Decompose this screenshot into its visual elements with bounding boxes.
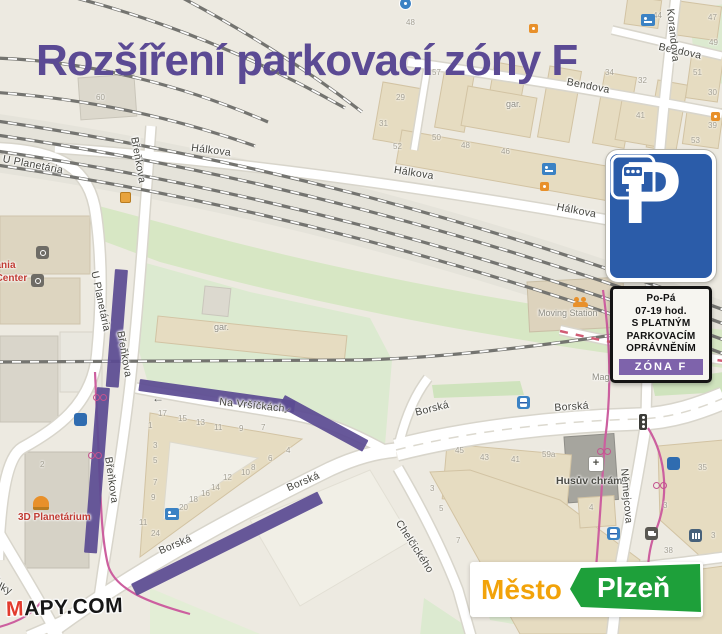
house-number: 4 xyxy=(589,503,593,512)
house-number: 11 xyxy=(214,423,222,432)
street-label: Břeňkova xyxy=(102,456,120,504)
house-number: 6 xyxy=(268,454,272,463)
house-number: 52 xyxy=(393,142,402,151)
shop-icon xyxy=(540,182,549,191)
house-number: 50 xyxy=(432,133,441,142)
parking-meter-icon xyxy=(610,154,656,200)
bike-icon xyxy=(653,480,665,488)
parking-sign-blue-panel: P xyxy=(606,150,716,282)
parking-icon xyxy=(667,457,680,470)
street-label: Borská xyxy=(285,470,321,495)
crossing-icon xyxy=(120,192,131,203)
house-number: 59a xyxy=(542,450,555,459)
pin-icon xyxy=(399,0,412,10)
street-label: Borská xyxy=(554,400,589,414)
house-number: 32 xyxy=(638,76,647,85)
house-number: 31 xyxy=(379,119,388,128)
house-number: 7 xyxy=(153,478,157,487)
house-number: 51 xyxy=(693,68,702,77)
shop-icon xyxy=(529,24,538,33)
house-number: 9 xyxy=(151,493,155,502)
house-number: 39 xyxy=(708,121,717,130)
house-number: 2 xyxy=(40,460,44,469)
tram-icon xyxy=(517,396,530,409)
house-number: 8 xyxy=(251,463,255,472)
plate-line: OPRÁVNĚNÍM xyxy=(613,343,709,356)
street-label: Němejcova xyxy=(618,468,635,524)
house-number: 12 xyxy=(223,473,232,482)
mapy-logo-rest: APY.COM xyxy=(24,594,124,620)
map-canvas: 2931525048464257343248444749513041395360… xyxy=(0,0,722,634)
plate-line: PARKOVACÍM xyxy=(613,331,709,344)
traffic-icon xyxy=(639,414,647,430)
bank-icon xyxy=(689,529,702,542)
bike-icon xyxy=(597,446,609,454)
plate-line: S PLATNÝM xyxy=(613,318,709,331)
plate-line: Po-Pá xyxy=(613,293,709,306)
house-number: 10 xyxy=(241,468,250,477)
place-label: Moving Station xyxy=(538,308,598,318)
house-number: 15 xyxy=(178,414,187,423)
house-number: 41 xyxy=(636,111,645,120)
house-number: 20 xyxy=(179,503,188,512)
arrow-icon: ← xyxy=(152,393,164,403)
street-label: U Planetária xyxy=(0,420,1,482)
house-number: 3 xyxy=(430,484,434,493)
house-number: 43 xyxy=(480,453,489,462)
church-icon: + xyxy=(588,456,604,472)
dome-icon xyxy=(33,496,49,510)
house-number: 30 xyxy=(708,88,717,97)
house-number: 5 xyxy=(153,456,157,465)
bike-icon xyxy=(88,450,100,458)
house-number: 7 xyxy=(261,423,265,432)
street-label: Borská xyxy=(157,533,193,558)
house-number: 48 xyxy=(461,141,470,150)
street-label: U Planetária xyxy=(88,270,113,333)
house-number: 35 xyxy=(698,463,707,472)
place-label: Science Center xyxy=(0,273,27,284)
house-number: 17 xyxy=(158,409,167,418)
house-number: 9 xyxy=(239,424,243,433)
place-label: Techmania xyxy=(0,260,16,271)
house-number: 46 xyxy=(501,147,510,156)
house-number: 4 xyxy=(286,446,290,455)
mapy-com-logo: MAPY.COM xyxy=(6,594,124,622)
tram-icon xyxy=(607,527,620,540)
house-number: 3 xyxy=(153,441,157,450)
museum-icon xyxy=(31,274,44,287)
parking-icon xyxy=(74,413,87,426)
house-number: 41 xyxy=(511,455,520,464)
zone-f-badge: ZÓNA F xyxy=(619,359,703,375)
place-label: 3D Planetárium xyxy=(18,512,91,523)
house-number: 48 xyxy=(406,18,415,27)
place-label: Husův chrám xyxy=(556,475,623,487)
page-title: Rozšíření parkovací zóny F xyxy=(36,36,577,86)
parking-zone-sign: P Po-Pá 07-19 hod. S PLATNÝM PARKOVACÍM … xyxy=(606,150,716,383)
house-number: 53 xyxy=(691,136,700,145)
hotel-icon xyxy=(641,14,655,26)
house-number: 7 xyxy=(456,536,460,545)
house-number: 18 xyxy=(189,495,198,504)
bike-icon xyxy=(93,392,105,400)
house-number: 5 xyxy=(439,504,443,513)
house-number: 45 xyxy=(455,446,464,455)
house-number: 16 xyxy=(201,489,210,498)
house-number: 3 xyxy=(663,501,667,510)
street-label: Hálkova xyxy=(393,164,434,182)
city-logo-plzen: Plzeň xyxy=(597,572,670,604)
house-number: 24 xyxy=(151,529,160,538)
street-label: alky xyxy=(0,578,14,597)
house-number: 13 xyxy=(196,418,205,427)
house-number: 47 xyxy=(708,13,717,22)
zone-extension-segment xyxy=(279,395,369,452)
house-number: 3 xyxy=(711,531,715,540)
place-label: gar. xyxy=(214,322,229,332)
street-label: Hálkova xyxy=(556,201,598,220)
street-label: Hálkova xyxy=(191,142,232,159)
house-number: 1 xyxy=(148,421,152,430)
street-label: Chelčického xyxy=(393,518,436,575)
parking-sign-plate: Po-Pá 07-19 hod. S PLATNÝM PARKOVACÍM OP… xyxy=(610,286,712,383)
house-number: 14 xyxy=(211,483,220,492)
house-number: 34 xyxy=(605,68,614,77)
street-label: U Planetária xyxy=(2,153,65,176)
cafe-icon xyxy=(645,527,658,540)
shop-icon xyxy=(711,112,720,121)
house-number: 60 xyxy=(96,93,105,102)
place-label: gar. xyxy=(506,99,521,109)
museum-icon xyxy=(36,246,49,259)
street-label: Břeňkova xyxy=(128,136,148,184)
house-number: 29 xyxy=(396,93,405,102)
house-number: 38 xyxy=(664,546,673,555)
hotel-icon xyxy=(165,508,179,520)
city-logo-mesto: Město xyxy=(481,574,562,606)
street-label: Borská xyxy=(414,399,450,419)
house-number: 49 xyxy=(709,38,718,47)
theater-icon xyxy=(573,297,588,307)
plate-line: 07-19 hod. xyxy=(613,306,709,319)
house-number: 11 xyxy=(139,518,147,527)
mesto-plzen-logo: Město Plzeň xyxy=(470,562,703,617)
mapy-logo-m: M xyxy=(6,597,25,621)
hotel-icon xyxy=(542,163,556,175)
